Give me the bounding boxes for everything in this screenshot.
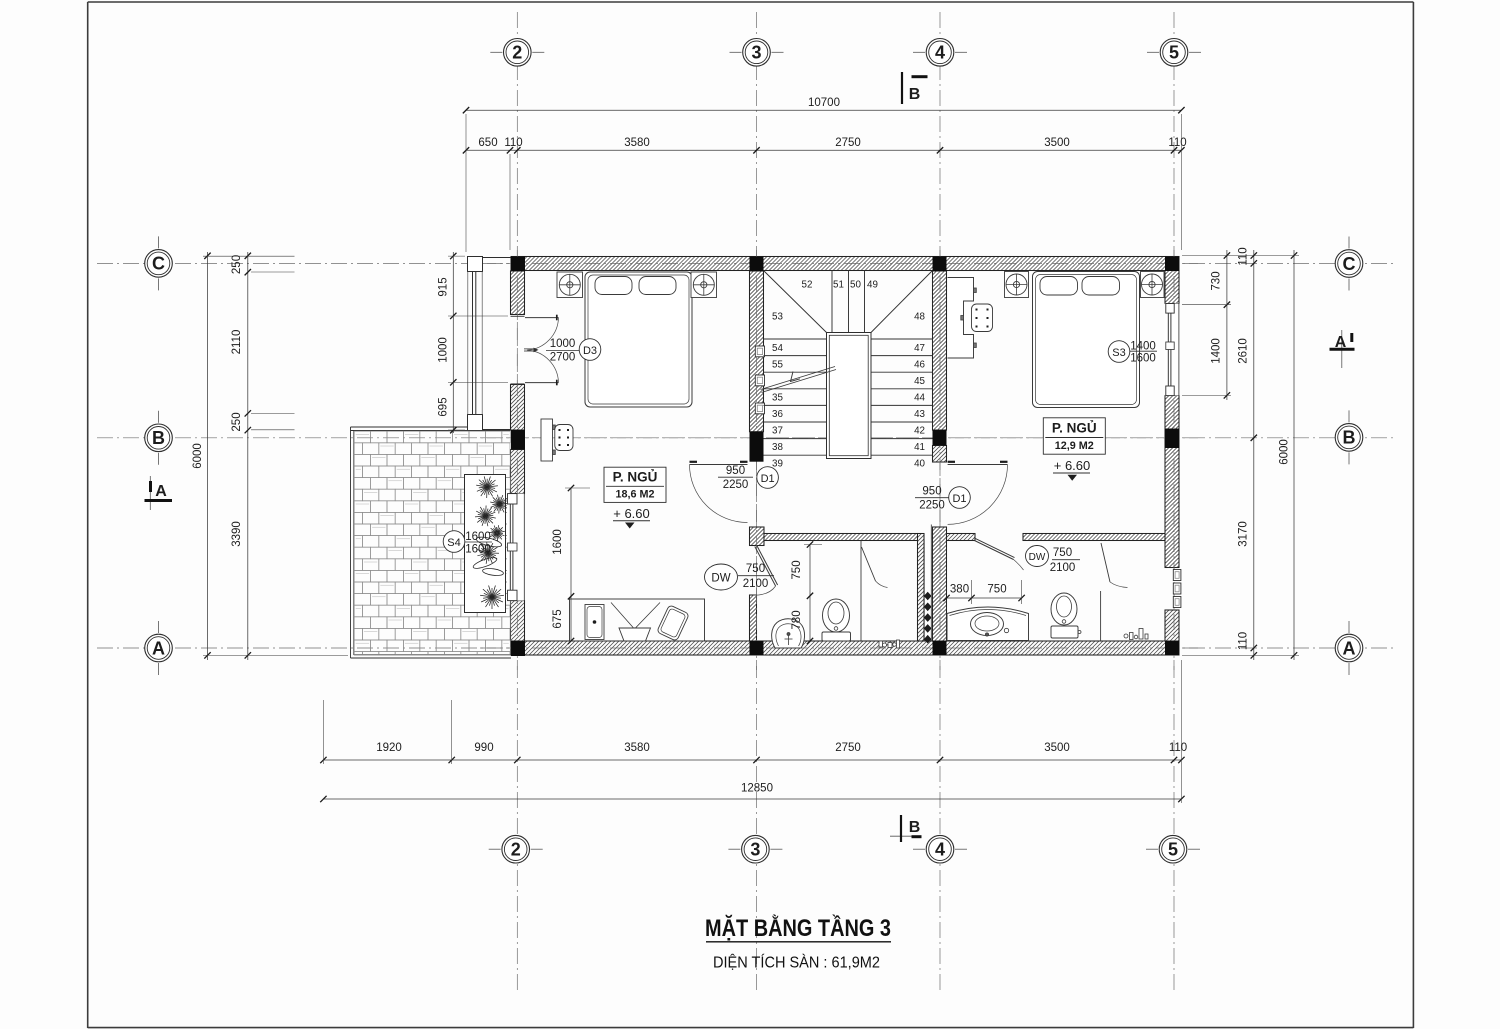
svg-text:110: 110 [1238, 632, 1250, 650]
svg-text:D1: D1 [952, 493, 966, 505]
svg-text:38: 38 [772, 442, 783, 453]
svg-text:18,6 M2: 18,6 M2 [615, 489, 654, 501]
svg-text:P. NGỦ: P. NGỦ [613, 470, 658, 485]
svg-text:1000: 1000 [438, 337, 450, 363]
svg-text:110: 110 [1169, 742, 1187, 754]
svg-text:1000: 1000 [550, 338, 576, 350]
svg-text:51: 51 [833, 280, 844, 291]
svg-text:675: 675 [552, 609, 564, 628]
svg-text:D3: D3 [583, 345, 597, 357]
svg-text:780: 780 [791, 610, 803, 629]
svg-text:990: 990 [474, 742, 493, 754]
svg-text:12,9 M2: 12,9 M2 [1055, 440, 1094, 452]
svg-text:380: 380 [950, 584, 969, 596]
svg-text:41: 41 [914, 442, 925, 453]
svg-text:3: 3 [751, 43, 761, 63]
svg-text:37: 37 [772, 426, 783, 437]
svg-text:2100: 2100 [743, 578, 769, 590]
svg-text:C: C [152, 254, 165, 274]
svg-text:A: A [155, 483, 167, 500]
svg-text:2700: 2700 [550, 352, 576, 364]
svg-text:B: B [1343, 428, 1356, 448]
svg-text:5: 5 [1168, 840, 1178, 860]
svg-text:3: 3 [750, 840, 760, 860]
svg-text:6000: 6000 [1279, 439, 1291, 465]
svg-text:3170: 3170 [1238, 521, 1250, 547]
svg-text:45: 45 [914, 376, 925, 387]
svg-text:47: 47 [914, 343, 925, 354]
svg-text:B: B [909, 86, 921, 103]
svg-text:MẶT BẰNG TẦNG 3: MẶT BẰNG TẦNG 3 [705, 914, 891, 942]
svg-text:53: 53 [772, 312, 783, 323]
svg-text:4: 4 [935, 43, 945, 63]
svg-text:S4: S4 [447, 537, 460, 549]
svg-text:2610: 2610 [1238, 338, 1250, 364]
svg-text:3500: 3500 [1044, 137, 1070, 149]
svg-text:1400: 1400 [1130, 341, 1156, 353]
svg-text:DW: DW [1029, 552, 1046, 563]
svg-text:2750: 2750 [835, 137, 861, 149]
svg-text:1600: 1600 [465, 544, 491, 556]
svg-text:+ 6.60: + 6.60 [613, 506, 650, 521]
svg-text:3580: 3580 [624, 742, 650, 754]
svg-text:35: 35 [772, 393, 783, 404]
svg-text:3500: 3500 [1044, 742, 1070, 754]
svg-text:1920: 1920 [376, 742, 402, 754]
svg-text:950: 950 [726, 465, 745, 477]
svg-text:2250: 2250 [919, 500, 945, 512]
svg-text:D1: D1 [761, 473, 775, 485]
svg-text:36: 36 [772, 409, 783, 420]
svg-text:650: 650 [478, 137, 497, 149]
svg-text:6000: 6000 [192, 443, 204, 469]
svg-text:750: 750 [987, 584, 1006, 596]
svg-text:730: 730 [1211, 271, 1223, 290]
svg-text:A: A [1343, 638, 1356, 658]
svg-text:+ 6.60: + 6.60 [1054, 458, 1091, 473]
svg-text:2100: 2100 [1050, 562, 1076, 574]
svg-text:2110: 2110 [231, 330, 243, 355]
svg-text:950: 950 [922, 486, 941, 498]
svg-text:48: 48 [914, 312, 925, 323]
svg-text:50: 50 [850, 280, 861, 291]
svg-text:5: 5 [1169, 43, 1179, 63]
svg-text:915: 915 [438, 277, 450, 296]
svg-text:S3: S3 [1112, 347, 1125, 359]
svg-text:110: 110 [1238, 247, 1250, 265]
svg-text:2250: 2250 [723, 479, 749, 491]
svg-text:12850: 12850 [741, 783, 773, 795]
svg-text:2750: 2750 [835, 742, 861, 754]
svg-text:2: 2 [511, 840, 521, 860]
svg-text:54: 54 [772, 343, 783, 354]
svg-text:52: 52 [802, 280, 813, 291]
svg-text:43: 43 [914, 409, 925, 420]
svg-text:695: 695 [438, 397, 450, 416]
svg-text:DW: DW [711, 572, 730, 584]
svg-text:10700: 10700 [808, 97, 840, 109]
svg-text:P. NGỦ: P. NGỦ [1052, 421, 1097, 436]
svg-text:40: 40 [914, 459, 925, 470]
svg-text:3580: 3580 [624, 137, 650, 149]
svg-text:750: 750 [791, 560, 803, 579]
svg-text:A: A [152, 638, 165, 658]
svg-text:1600: 1600 [1130, 353, 1156, 365]
svg-text:C: C [1343, 254, 1356, 274]
svg-text:250: 250 [231, 412, 243, 431]
svg-text:B: B [152, 428, 165, 448]
svg-text:B: B [909, 819, 921, 836]
svg-text:4: 4 [935, 840, 945, 860]
svg-text:2: 2 [512, 43, 522, 63]
svg-text:44: 44 [914, 393, 925, 404]
svg-text:39: 39 [772, 459, 783, 470]
svg-text:750: 750 [746, 563, 765, 575]
svg-text:46: 46 [914, 360, 925, 371]
svg-text:750: 750 [1053, 547, 1072, 559]
svg-text:55: 55 [772, 360, 783, 371]
svg-text:1400: 1400 [1211, 338, 1223, 364]
svg-text:1600: 1600 [552, 529, 564, 555]
svg-text:49: 49 [867, 280, 878, 291]
svg-text:42: 42 [914, 426, 925, 437]
svg-text:DIỆN TÍCH SÀN : 61,9M2: DIỆN TÍCH SÀN : 61,9M2 [713, 955, 880, 972]
svg-text:110: 110 [504, 137, 522, 149]
svg-text:3390: 3390 [231, 521, 243, 547]
svg-text:110: 110 [1168, 137, 1186, 149]
svg-text:250: 250 [231, 255, 243, 274]
svg-text:1600: 1600 [465, 531, 491, 543]
